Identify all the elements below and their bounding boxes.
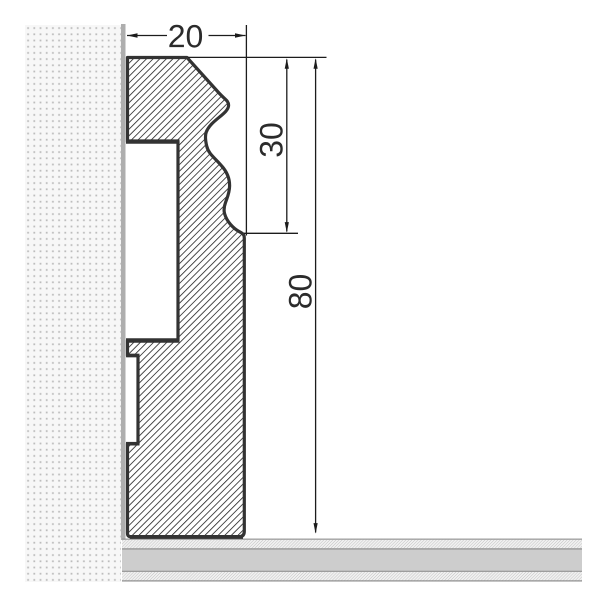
svg-text:20: 20 <box>168 18 204 54</box>
svg-text:30: 30 <box>254 122 290 158</box>
svg-text:80: 80 <box>283 274 319 310</box>
